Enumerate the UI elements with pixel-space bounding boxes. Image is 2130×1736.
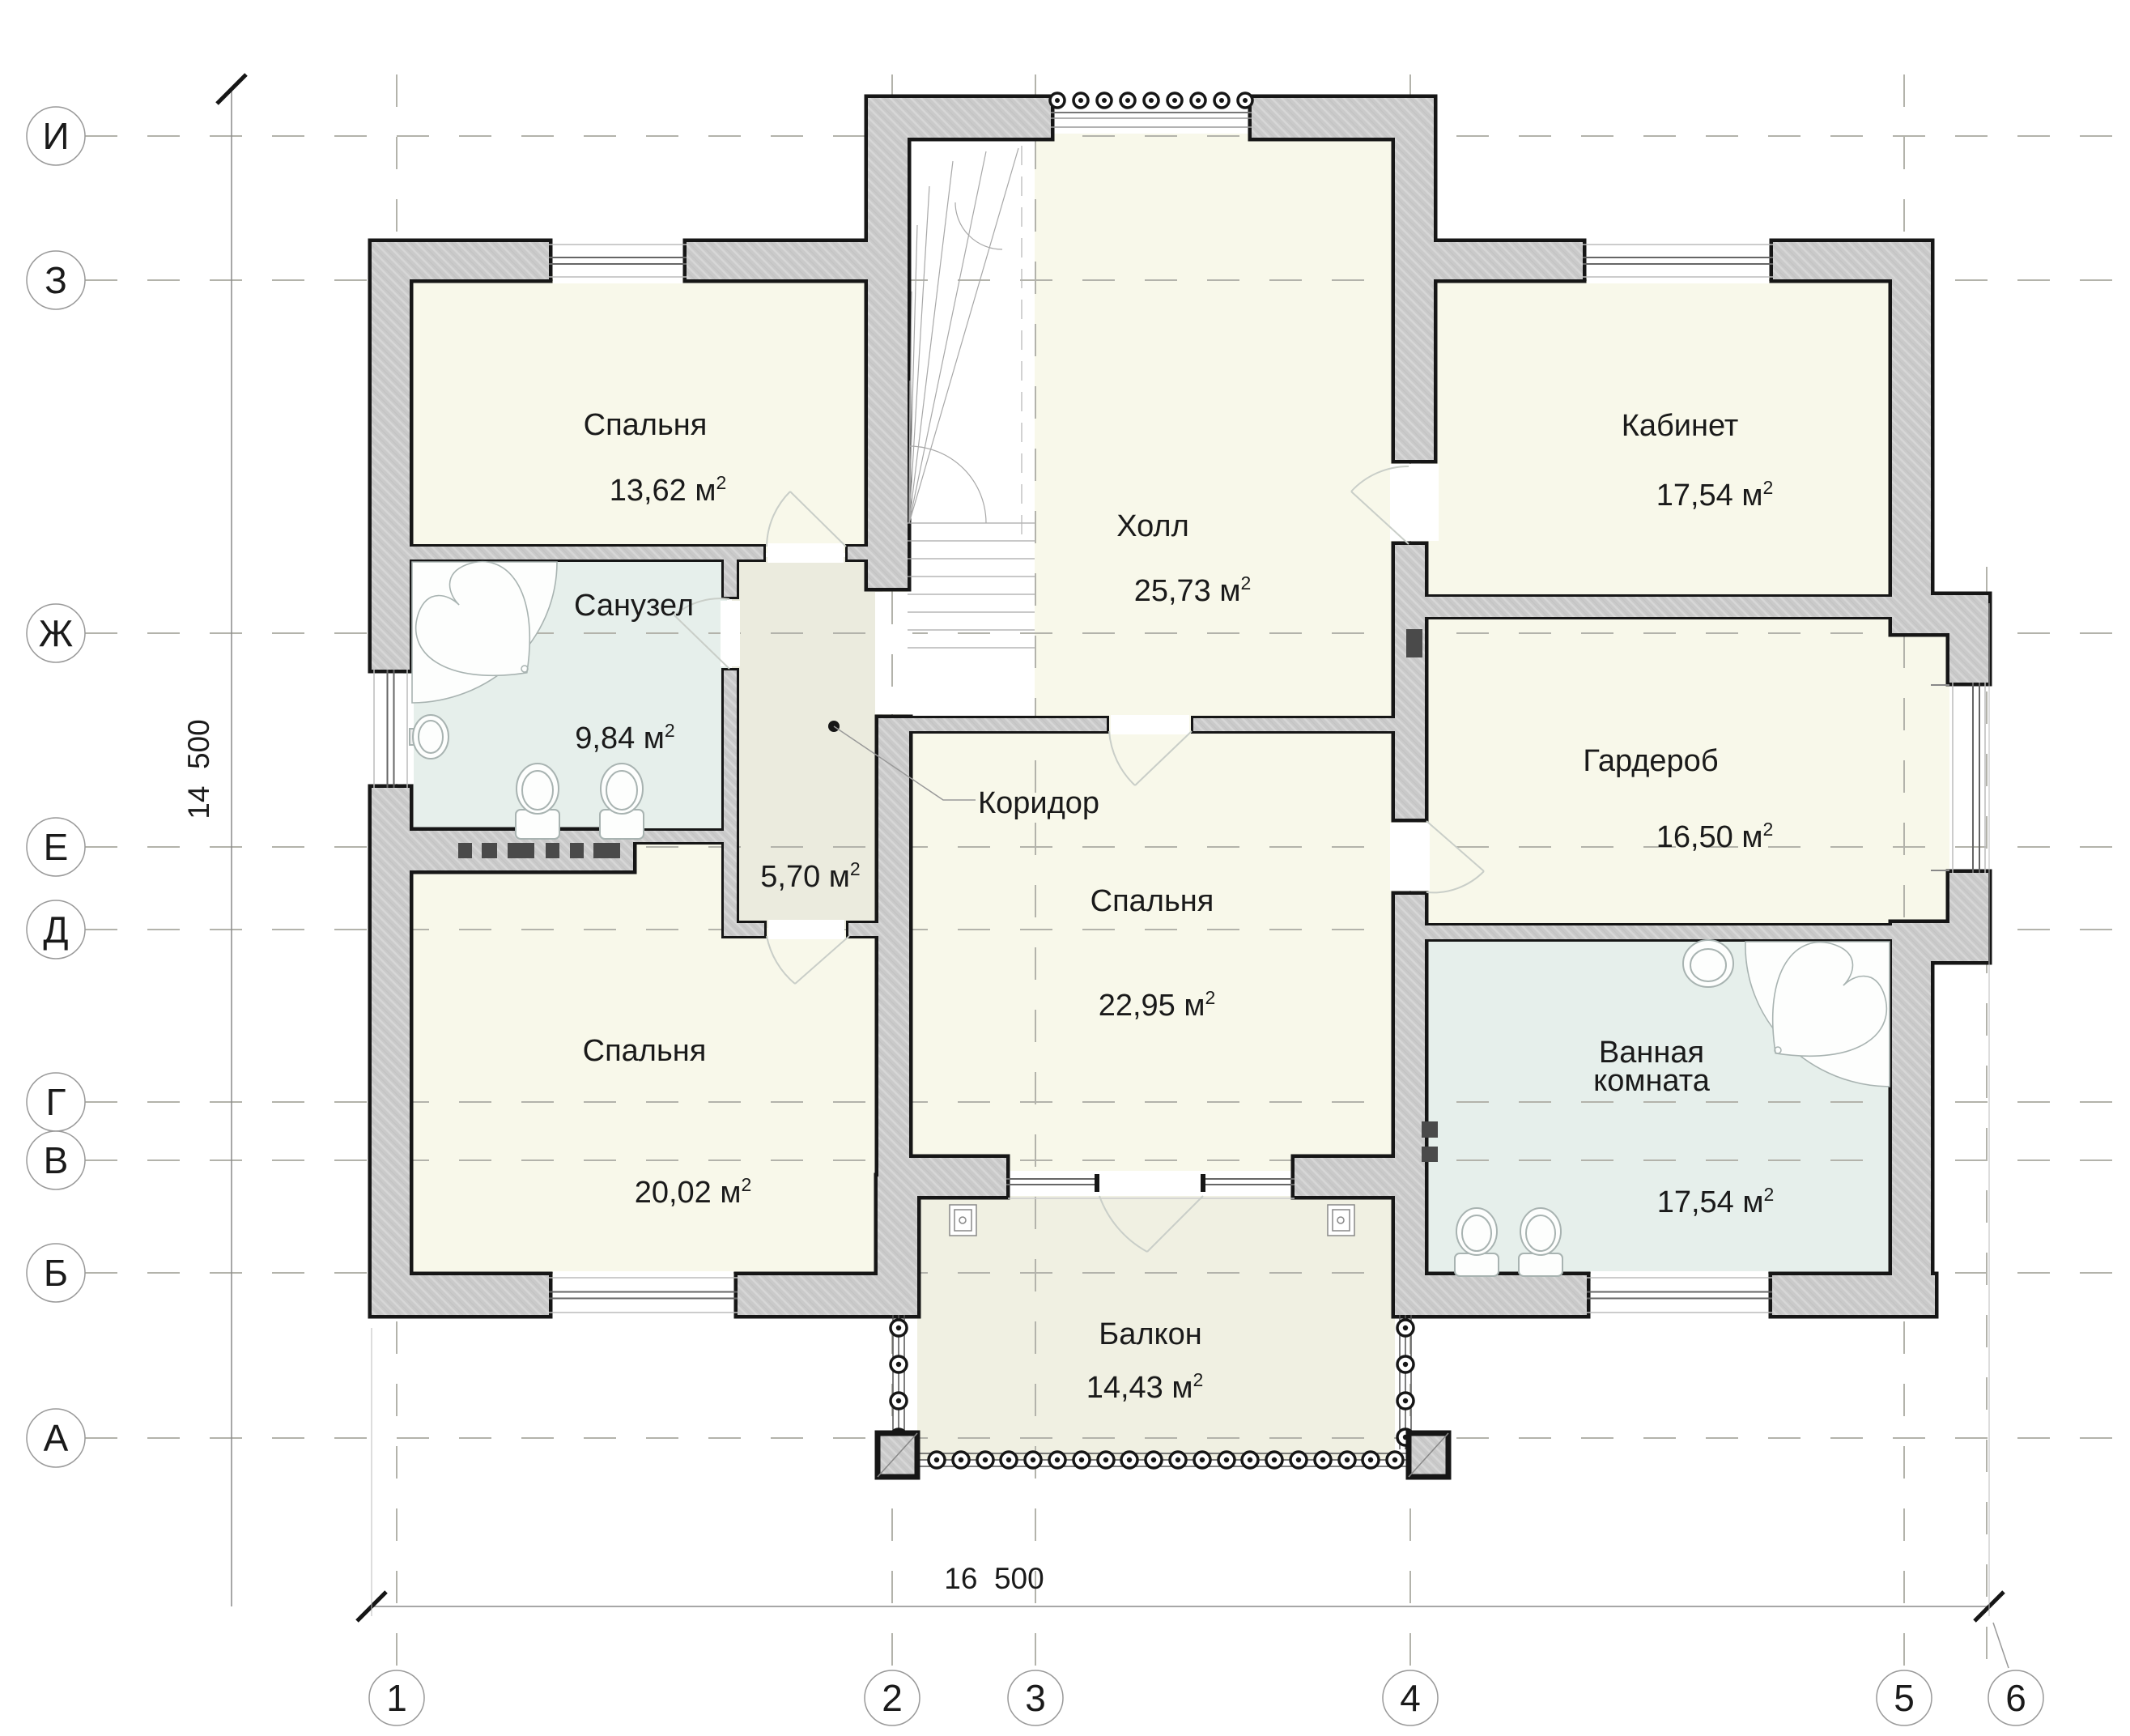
svg-text:Б: Б <box>44 1252 68 1294</box>
svg-text:Спальня: Спальня <box>1091 884 1214 918</box>
svg-text:14 500: 14 500 <box>182 719 215 819</box>
svg-text:Д: Д <box>43 908 68 951</box>
svg-text:1: 1 <box>386 1677 407 1719</box>
svg-text:Санузел: Санузел <box>574 589 694 623</box>
svg-text:13,62 м2: 13,62 м2 <box>610 472 727 508</box>
svg-text:З: З <box>45 259 67 301</box>
svg-text:Гардероб: Гардероб <box>1583 744 1718 778</box>
svg-text:9,84 м2: 9,84 м2 <box>575 720 674 755</box>
svg-text:5: 5 <box>1894 1677 1915 1719</box>
svg-text:2: 2 <box>882 1677 903 1719</box>
svg-text:16,50 м2: 16,50 м2 <box>1656 819 1774 854</box>
svg-text:Г: Г <box>46 1081 66 1123</box>
svg-text:17,54 м2: 17,54 м2 <box>1657 1184 1775 1219</box>
svg-text:6: 6 <box>2005 1677 2026 1719</box>
svg-text:Спальня: Спальня <box>584 408 708 442</box>
svg-text:Е: Е <box>44 826 69 868</box>
svg-text:Кабинет: Кабинет <box>1622 409 1739 443</box>
svg-text:25,73 м2: 25,73 м2 <box>1134 572 1252 608</box>
svg-text:16 500: 16 500 <box>944 1562 1044 1595</box>
svg-text:В: В <box>44 1139 69 1181</box>
svg-text:А: А <box>44 1417 69 1459</box>
svg-text:20,02 м2: 20,02 м2 <box>635 1174 752 1210</box>
svg-text:Балкон: Балкон <box>1099 1317 1201 1351</box>
svg-text:4: 4 <box>1400 1677 1421 1719</box>
svg-text:3: 3 <box>1025 1677 1046 1719</box>
svg-text:22,95 м2: 22,95 м2 <box>1099 987 1216 1023</box>
svg-text:Ж: Ж <box>39 612 73 654</box>
svg-text:комната: комната <box>1593 1064 1711 1098</box>
svg-text:5,70 м2: 5,70 м2 <box>760 858 860 894</box>
svg-text:Коридор: Коридор <box>978 786 1099 820</box>
svg-text:Холл: Холл <box>1116 509 1189 543</box>
svg-text:И: И <box>42 115 69 157</box>
svg-text:17,54 м2: 17,54 м2 <box>1656 477 1774 513</box>
svg-text:14,43 м2: 14,43 м2 <box>1086 1369 1204 1405</box>
svg-text:Спальня: Спальня <box>583 1034 707 1068</box>
